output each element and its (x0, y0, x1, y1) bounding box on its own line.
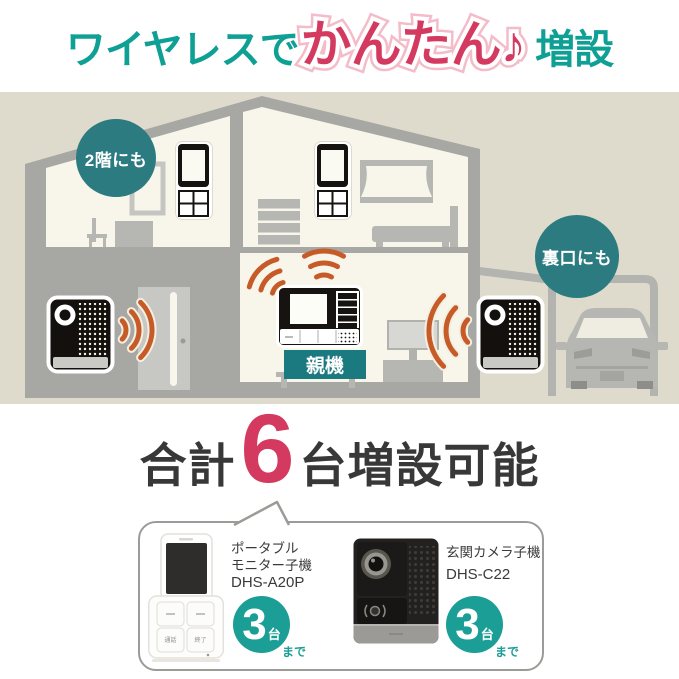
parent-unit-device (278, 287, 362, 347)
entrance-camera-model: DHS-C22 (446, 566, 510, 583)
portable-monitor-2f-left (176, 142, 213, 220)
parent-unit-label: 親機 (284, 350, 366, 379)
summary-suffix: 台増設可能 (299, 427, 539, 496)
entrance-camera-count-unit: 台 (481, 624, 494, 643)
back-door-camera (479, 298, 543, 372)
title-suffix: 増設 (535, 17, 613, 75)
badge-back-door: 裏口にも (535, 215, 619, 298)
portable-monitor-photo: 通話 終了 (148, 532, 224, 664)
portable-monitor-name: ポータブル モニター子機 (231, 540, 312, 574)
end-button-label: 終了 (194, 636, 206, 644)
portable-monitor-2f-right (315, 142, 352, 220)
summary-prefix: 合計 (140, 427, 236, 496)
entrance-camera-name: 玄関カメラ子機 (446, 544, 541, 561)
entrance-camera-photo (353, 538, 439, 644)
curtain-window (360, 160, 433, 203)
summary-line: 合計 6 台増設可能 (0, 400, 679, 497)
summary-count: 6 (241, 400, 295, 497)
title-banner: ワイヤレスで かんたん♪ かんたん♪ かんたん♪ 増設 (0, 0, 679, 92)
talk-button-label: 通話 (164, 636, 176, 644)
badge-second-floor: 2階にも (76, 119, 156, 197)
entrance-camera-count: 3 (455, 603, 479, 647)
entrance-camera-count-suffix: まで (495, 643, 519, 660)
portable-monitor-name-line2: モニター子機 (231, 557, 312, 574)
portable-monitor-model: DHS-A20P (231, 574, 304, 591)
front-door-camera (49, 298, 113, 372)
title-prefix: ワイヤレスで (66, 17, 299, 75)
portable-monitor-count-unit: 台 (268, 624, 281, 643)
title-highlight: かんたん♪ かんたん♪ かんたん♪ (301, 19, 526, 70)
portable-monitor-name-line1: ポータブル (231, 540, 312, 557)
portable-monitor-count-suffix: まで (282, 643, 306, 660)
portable-monitor-count: 3 (242, 603, 266, 647)
promo-image: ワイヤレスで かんたん♪ かんたん♪ かんたん♪ 増設 2階にも 裏口にも 親機… (0, 0, 679, 679)
